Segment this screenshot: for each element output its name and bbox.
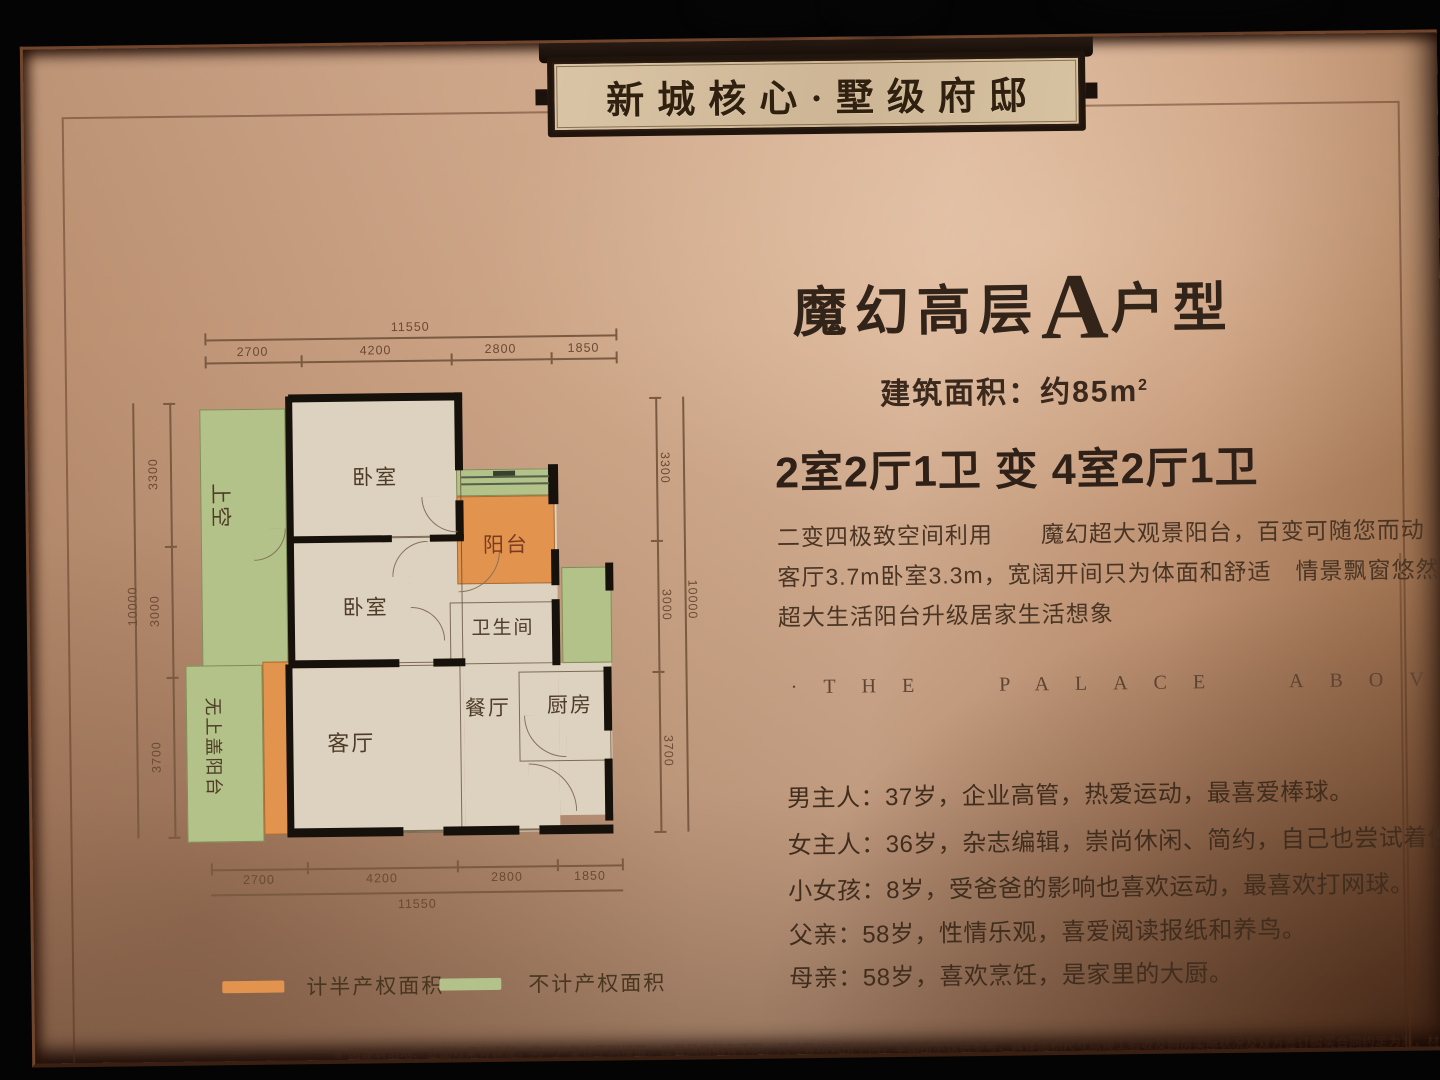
wall-segment xyxy=(548,464,558,504)
photo-blob xyxy=(1055,0,1325,24)
wall-segment xyxy=(433,658,465,666)
dim-tick xyxy=(651,540,663,542)
window-marker xyxy=(493,471,515,476)
wall-segment xyxy=(291,659,399,668)
wall-segment xyxy=(290,535,392,543)
dim-bottom-3: 2800 xyxy=(457,869,557,884)
display-board: 新城核心·墅级府邸 魔幻高层A户型 建筑面积：约85m2 2室2厅1卫 变 4室… xyxy=(20,29,1440,1067)
wall-segment xyxy=(605,759,614,821)
wall-segment xyxy=(454,392,463,470)
dim-tick xyxy=(168,837,180,839)
unit-area: 建筑面积：约85m2 xyxy=(772,365,1258,415)
dim-bottom-4: 1850 xyxy=(557,868,623,883)
unit-title-suffix: 户型 xyxy=(1110,278,1235,340)
room-label-bedroom1: 卧室 xyxy=(289,460,461,492)
room-label-bathroom: 卫生间 xyxy=(450,612,556,640)
plaque-title: 新城核心·墅级府邸 xyxy=(593,64,1040,124)
dim-top-3: 2800 xyxy=(450,341,550,356)
dim-tick xyxy=(654,831,666,833)
room-label-living: 客厅 xyxy=(291,725,411,758)
dim-top-total: 11550 xyxy=(204,317,616,336)
legend-swatch-non-property xyxy=(439,978,501,991)
unit-title-prefix: 魔幻高层 xyxy=(792,280,1041,343)
dim-top-2: 4200 xyxy=(300,342,450,358)
plaque-face: 新城核心·墅级府邸 xyxy=(552,56,1081,132)
dim-left-1: 3300 xyxy=(146,444,161,504)
dim-top-1: 2700 xyxy=(204,344,300,359)
unit-area-value: 建筑面积：约85 xyxy=(880,375,1110,411)
dim-bottom-2: 4200 xyxy=(307,870,457,886)
dim-right-2: 3000 xyxy=(659,575,674,635)
family-line-father: 父亲：58岁，性情乐观，喜爱阅读报纸和养鸟。 xyxy=(788,909,1306,950)
room-label-void: 上空 xyxy=(214,451,237,561)
wall-segment xyxy=(287,827,403,837)
dim-tick xyxy=(163,403,175,405)
unit-area-sup: 2 xyxy=(1138,377,1149,394)
dim-tick xyxy=(649,397,661,399)
photo-stage: 新城核心·墅级府邸 魔幻高层A户型 建筑面积：约85m2 2室2厅1卫 变 4室… xyxy=(0,0,1440,1080)
photo-blob xyxy=(690,0,840,34)
dim-line-left-seg xyxy=(169,403,176,838)
wall-segment xyxy=(443,826,519,836)
floor-plan: 卧室 卧室 阳台 卫生间 餐厅 厨房 客厅 上空 无上盖阳台 11550 270… xyxy=(121,309,710,1046)
room-label-dining: 餐厅 xyxy=(448,692,528,723)
plaque-right-tab xyxy=(1085,83,1097,99)
family-line-husband: 男主人：37岁，企业高管，热爱运动，最喜爱棒球。 xyxy=(787,771,1354,813)
header-plaque: 新城核心·墅级府邸 xyxy=(547,29,1086,137)
dim-bottom-1: 2700 xyxy=(211,872,307,887)
family-line-mother: 母亲：58岁，喜欢烹饪，是家里的大厨。 xyxy=(789,953,1234,993)
legend-label-non-property: 不计产权面积 xyxy=(528,967,666,999)
dim-bottom-total: 11550 xyxy=(211,894,623,913)
wall-segment xyxy=(605,562,613,590)
room-label-open-balcony: 无上盖阳台 xyxy=(204,672,228,822)
plaque-body: 新城核心·墅级府邸 xyxy=(547,51,1086,138)
dim-top-4: 1850 xyxy=(550,340,616,355)
dim-left-2: 3000 xyxy=(147,581,162,641)
plaque-left-tab xyxy=(535,89,547,105)
dim-tick xyxy=(167,677,179,679)
slogan-left-dot: · xyxy=(791,676,824,698)
photo-blob xyxy=(828,0,940,34)
unit-title-letter: A xyxy=(1040,254,1111,359)
unit-area-unit: m xyxy=(1109,375,1138,408)
unit-title: 魔幻高层A户型 xyxy=(771,263,1257,348)
room-label-balcony: 阳台 xyxy=(457,528,555,559)
dim-left-total: 10000 xyxy=(125,576,140,636)
dim-right-total: 10000 xyxy=(685,569,700,629)
dim-right-1: 3300 xyxy=(658,438,673,498)
dim-tick xyxy=(165,546,177,548)
legend-swatch-half-property xyxy=(222,981,284,994)
dim-left-3: 3700 xyxy=(149,727,164,787)
dim-tick xyxy=(652,671,664,673)
room-label-bedroom2: 卧室 xyxy=(291,591,441,623)
legend-label-half-property: 计半产权面积 xyxy=(306,970,444,1002)
dim-right-3: 3700 xyxy=(661,721,676,781)
wall-segment xyxy=(539,825,613,835)
room-label-kitchen: 厨房 xyxy=(526,688,614,719)
unit-layout-line: 2室2厅1卫 变 4室2厅1卫 xyxy=(775,433,1259,501)
window-line xyxy=(519,828,539,830)
